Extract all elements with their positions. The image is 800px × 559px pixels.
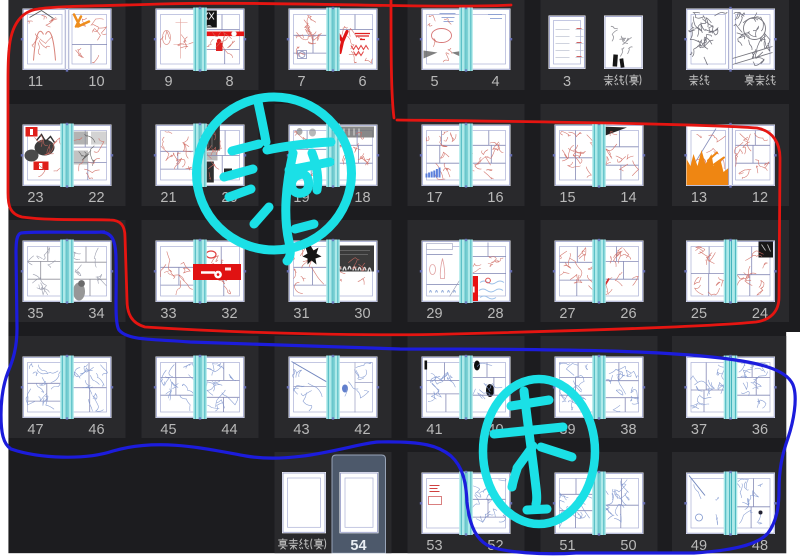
svg-text:16: 16 bbox=[487, 190, 503, 206]
svg-text:6: 6 bbox=[358, 74, 366, 90]
svg-text:10: 10 bbox=[88, 74, 104, 90]
svg-text:14: 14 bbox=[620, 190, 636, 206]
svg-text:47: 47 bbox=[27, 422, 43, 438]
svg-text:23: 23 bbox=[27, 190, 43, 206]
svg-text:8: 8 bbox=[225, 74, 233, 90]
svg-text:44: 44 bbox=[221, 422, 237, 438]
svg-text:22: 22 bbox=[88, 190, 104, 206]
svg-text:38: 38 bbox=[620, 422, 636, 438]
svg-text:11: 11 bbox=[28, 74, 43, 90]
svg-text:54: 54 bbox=[350, 538, 366, 554]
svg-text:17: 17 bbox=[426, 190, 442, 206]
svg-text:13: 13 bbox=[691, 190, 707, 206]
svg-text:42: 42 bbox=[354, 422, 370, 438]
svg-text:35: 35 bbox=[27, 306, 43, 322]
svg-text:34: 34 bbox=[88, 306, 104, 322]
svg-text:21: 21 bbox=[160, 190, 176, 206]
svg-text:9: 9 bbox=[164, 74, 172, 90]
svg-text:32: 32 bbox=[221, 306, 237, 322]
svg-text:29: 29 bbox=[426, 306, 442, 322]
svg-text:4: 4 bbox=[491, 74, 499, 90]
svg-text:7: 7 bbox=[297, 74, 305, 90]
svg-text:28: 28 bbox=[487, 306, 503, 322]
svg-text:25: 25 bbox=[691, 306, 707, 322]
svg-text:31: 31 bbox=[293, 306, 309, 322]
svg-text:43: 43 bbox=[293, 422, 309, 438]
svg-text:5: 5 bbox=[430, 74, 438, 90]
svg-text:45: 45 bbox=[160, 422, 176, 438]
svg-text:46: 46 bbox=[88, 422, 104, 438]
svg-text:30: 30 bbox=[354, 306, 370, 322]
svg-text:36: 36 bbox=[752, 422, 768, 438]
svg-text:27: 27 bbox=[559, 306, 575, 322]
svg-text:18: 18 bbox=[354, 190, 370, 206]
svg-text:26: 26 bbox=[620, 306, 636, 322]
svg-text:37: 37 bbox=[691, 422, 707, 438]
svg-text:33: 33 bbox=[160, 306, 176, 322]
svg-text:41: 41 bbox=[426, 422, 442, 438]
svg-text:3: 3 bbox=[563, 74, 571, 90]
svg-text:12: 12 bbox=[752, 190, 768, 206]
svg-text:53: 53 bbox=[426, 538, 442, 554]
svg-text:15: 15 bbox=[559, 190, 575, 206]
